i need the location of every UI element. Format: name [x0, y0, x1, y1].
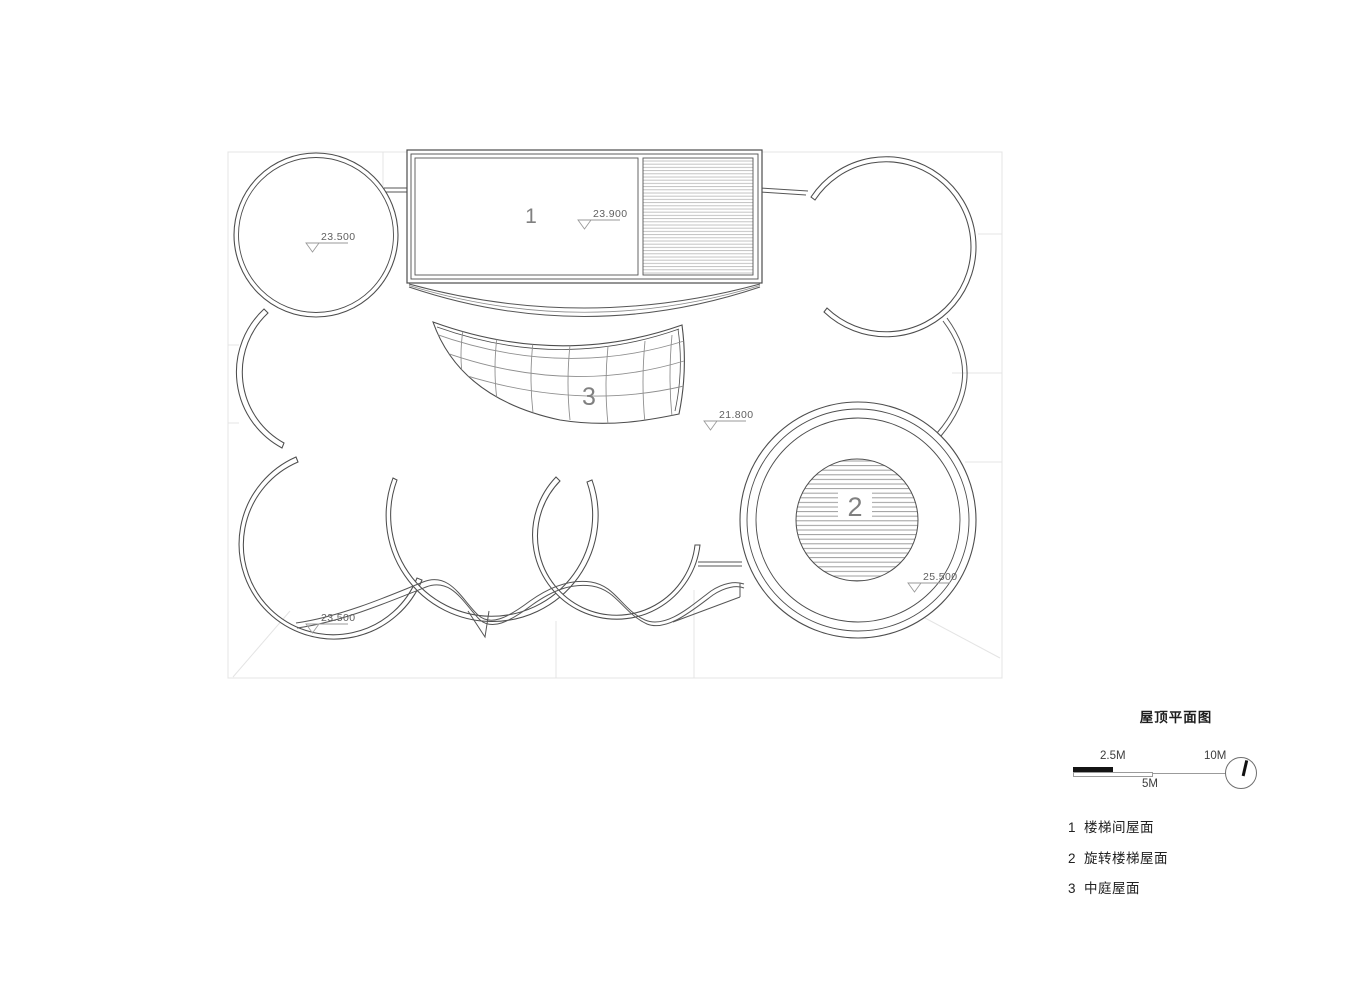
connection-stub-right [761, 188, 808, 195]
svg-text:21.800: 21.800 [719, 409, 754, 421]
atrium-roof: 3 [430, 322, 684, 424]
elevation-marker-bottom-left: 23.500 [306, 612, 356, 633]
stair-block: 1 [407, 150, 762, 283]
scale-bar-extension-line [1152, 773, 1226, 774]
legend-item-label: 楼梯间屋面 [1084, 816, 1154, 836]
canopy-band [409, 284, 760, 317]
legend-item-number: 1 [1068, 820, 1084, 835]
legend-item-spiral-stair: 2 旋转楼梯屋面 [1068, 847, 1292, 867]
legend-item-number: 2 [1068, 851, 1084, 866]
roof-label-stair-block: 1 [525, 205, 537, 228]
left-middle-arc [236, 309, 284, 448]
drawing-title: 屋顶平面图 [1060, 706, 1292, 726]
legend-item-label: 旋转楼梯屋面 [1084, 847, 1168, 867]
roof-label-atrium: 3 [582, 383, 596, 411]
svg-text:25.500: 25.500 [923, 571, 958, 583]
top-right-arc [811, 157, 976, 337]
scale-bar-open-segment [1073, 772, 1153, 777]
legend-item-label: 中庭屋面 [1084, 877, 1140, 897]
connection-stub-spiral [698, 562, 742, 566]
svg-text:23.900: 23.900 [593, 208, 628, 220]
roof-plan-sheet: 3 [0, 0, 1371, 1000]
north-needle-icon [1242, 760, 1248, 776]
elevation-marker-atrium: 21.800 [704, 409, 754, 430]
legend-item-atrium: 3 中庭屋面 [1068, 877, 1292, 897]
stair-block-hatch-panel [643, 158, 753, 275]
legend-items: 1 楼梯间屋面 2 旋转楼梯屋面 3 中庭屋面 [1060, 816, 1292, 897]
svg-text:23.500: 23.500 [321, 612, 356, 624]
scale-bar: 2.5M 10M 5M [1060, 726, 1292, 804]
top-left-circle-roof [234, 153, 398, 317]
legend-panel: 屋顶平面图 2.5M 10M 5M 1 楼梯间屋面 2 旋转楼梯屋面 3 中 [1060, 706, 1292, 908]
roof-label-spiral-stair: 2 [847, 492, 862, 522]
spiral-stair-roof: 2 [740, 402, 976, 638]
scale-label-10m: 10M [1204, 750, 1226, 762]
connection-stub-left [384, 188, 408, 192]
svg-text:23.500: 23.500 [321, 231, 356, 243]
legend-item-stair-block: 1 楼梯间屋面 [1068, 816, 1292, 836]
north-compass-icon [1225, 757, 1257, 789]
legend-item-number: 3 [1068, 881, 1084, 896]
connector-arc [937, 318, 967, 436]
scale-label-2-5m: 2.5M [1100, 750, 1126, 762]
scale-label-5m: 5M [1142, 778, 1158, 790]
